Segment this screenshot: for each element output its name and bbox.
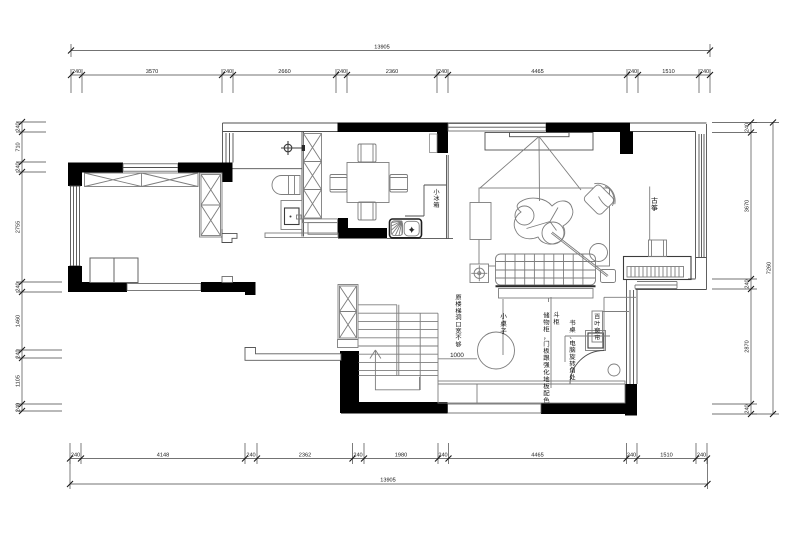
svg-text:240: 240 bbox=[438, 69, 447, 75]
svg-text:1510: 1510 bbox=[662, 69, 674, 75]
svg-text:240: 240 bbox=[223, 69, 232, 75]
svg-text:240: 240 bbox=[71, 453, 80, 459]
svg-text:3570: 3570 bbox=[146, 69, 158, 75]
svg-text:240: 240 bbox=[72, 69, 81, 75]
svg-text:1980: 1980 bbox=[395, 453, 407, 459]
svg-text:3670: 3670 bbox=[745, 200, 751, 212]
svg-text:240: 240 bbox=[700, 69, 709, 75]
svg-text:4148: 4148 bbox=[157, 453, 169, 459]
svg-text:240: 240 bbox=[745, 123, 751, 132]
svg-text:1000: 1000 bbox=[450, 352, 464, 359]
svg-text:240: 240 bbox=[16, 162, 22, 171]
svg-text:原楼梯洞口宽不够: 原楼梯洞口宽不够 bbox=[455, 295, 461, 349]
svg-text:2755: 2755 bbox=[16, 221, 22, 233]
svg-text:240: 240 bbox=[745, 404, 751, 413]
svg-text:240: 240 bbox=[16, 122, 22, 131]
svg-text:240: 240 bbox=[438, 453, 447, 459]
svg-text:13905: 13905 bbox=[374, 45, 390, 51]
svg-text:240: 240 bbox=[337, 69, 346, 75]
svg-text:2362: 2362 bbox=[299, 453, 311, 459]
svg-text:2360: 2360 bbox=[386, 69, 398, 75]
svg-text:710: 710 bbox=[16, 142, 22, 151]
svg-text:240: 240 bbox=[16, 403, 22, 412]
svg-text:4465: 4465 bbox=[531, 453, 543, 459]
svg-text:储物柜，门板跟强化地板配色: 储物柜，门板跟强化地板配色 bbox=[543, 312, 550, 405]
svg-text:1105: 1105 bbox=[16, 375, 22, 387]
svg-text:240: 240 bbox=[246, 453, 255, 459]
svg-text:240: 240 bbox=[697, 453, 706, 459]
svg-text:小桌子: 小桌子 bbox=[500, 313, 507, 336]
svg-text:7260: 7260 bbox=[767, 262, 773, 274]
svg-text:1460: 1460 bbox=[16, 315, 22, 327]
svg-text:斗柜: 斗柜 bbox=[553, 311, 560, 326]
svg-text:13905: 13905 bbox=[380, 478, 396, 484]
svg-text:书桌、电脑旋转角处: 书桌、电脑旋转角处 bbox=[569, 319, 576, 381]
svg-text:240: 240 bbox=[353, 453, 362, 459]
svg-text:小冰箱: 小冰箱 bbox=[433, 188, 440, 209]
svg-text:2660: 2660 bbox=[278, 69, 290, 75]
svg-text:2870: 2870 bbox=[745, 340, 751, 352]
svg-text:240: 240 bbox=[745, 279, 751, 288]
svg-text:240: 240 bbox=[16, 282, 22, 291]
svg-text:240: 240 bbox=[628, 69, 637, 75]
svg-text:4465: 4465 bbox=[531, 69, 543, 75]
svg-text:240: 240 bbox=[16, 349, 22, 358]
svg-text:240: 240 bbox=[627, 453, 636, 459]
svg-text:古筝: 古筝 bbox=[651, 197, 658, 213]
svg-text:1510: 1510 bbox=[660, 453, 672, 459]
